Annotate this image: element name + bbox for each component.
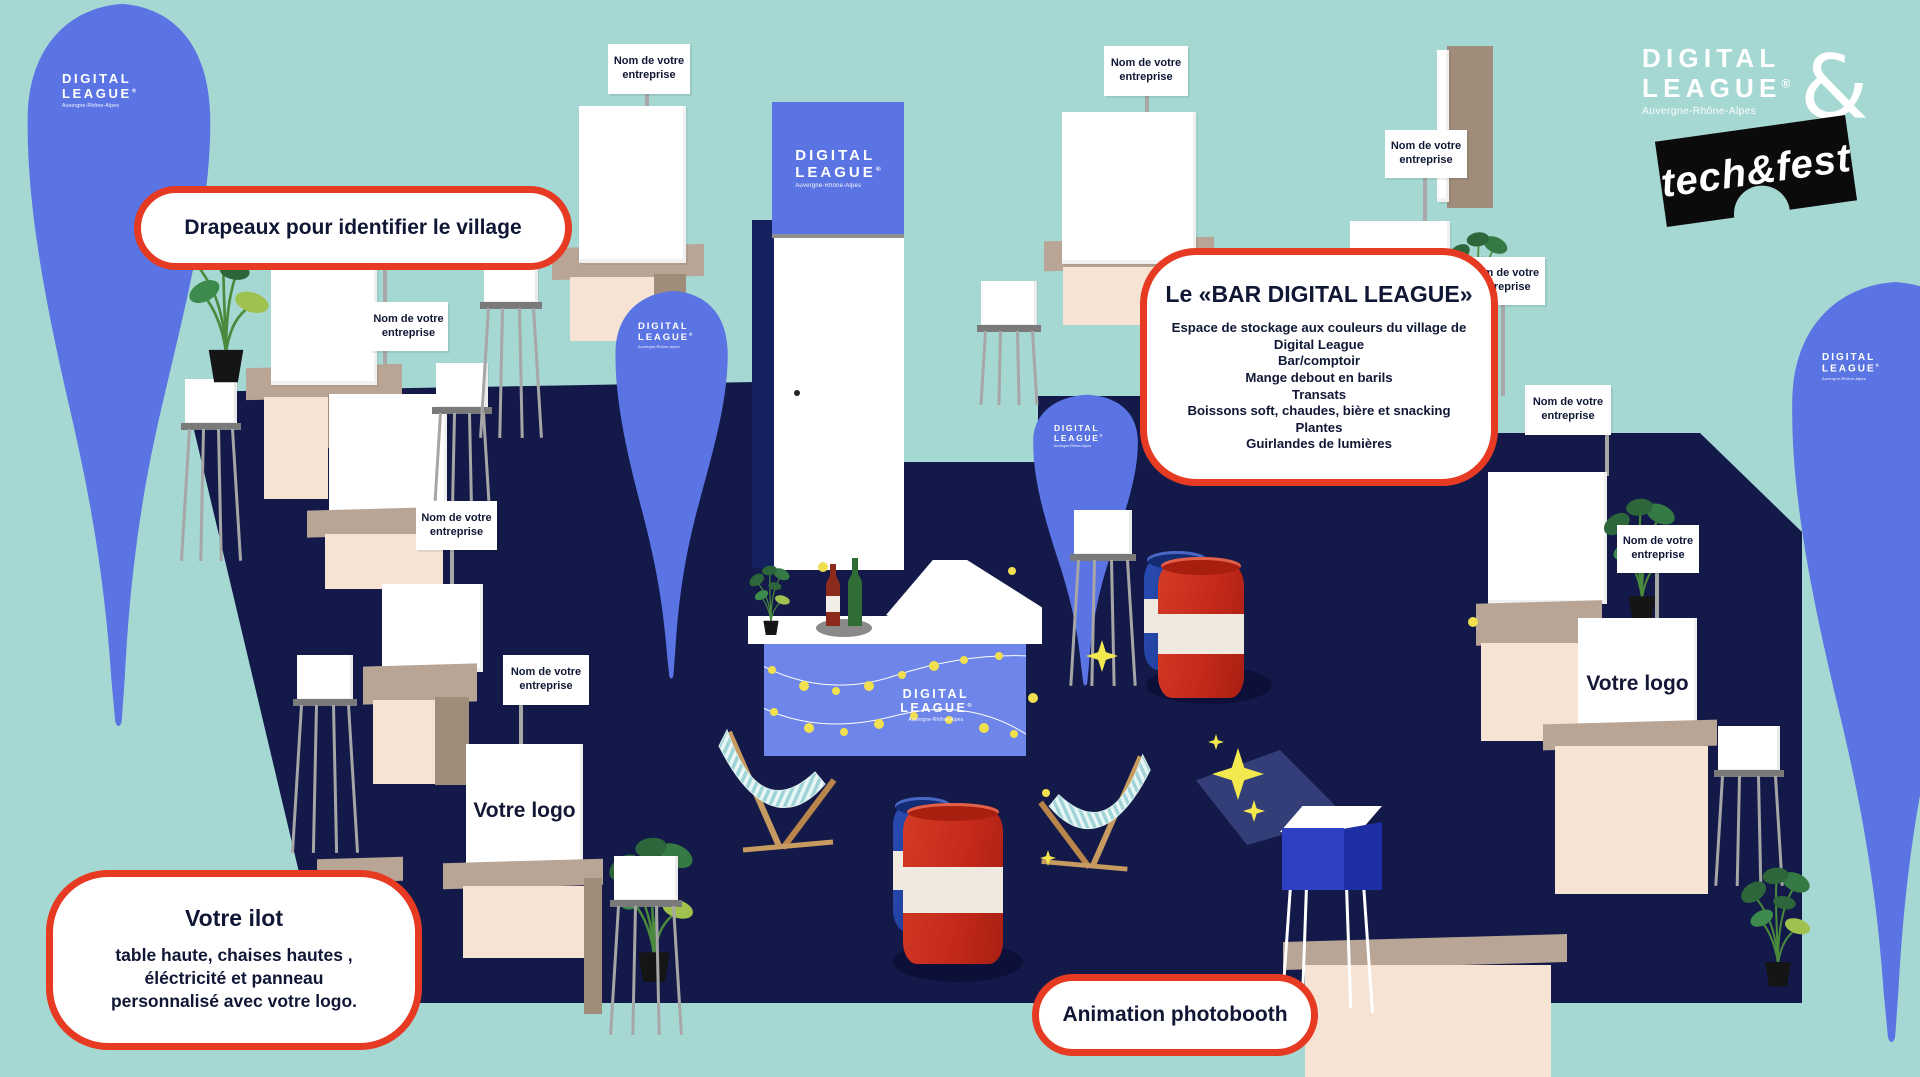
callout-flags-text: Drapeaux pour identifier le village bbox=[184, 216, 521, 240]
company-name-label: Nom de votre entreprise bbox=[371, 313, 446, 341]
digital-league-logo: DIGITAL LEAGUE® Auvergne-Rhône-Alpes bbox=[1822, 352, 1879, 381]
sign-pole bbox=[1655, 572, 1659, 622]
booth-front bbox=[1555, 746, 1708, 894]
booth-side bbox=[435, 697, 469, 785]
tower-sign: DIGITAL LEAGUE® Auvergne-Rhône-Alpes bbox=[772, 102, 904, 238]
booth-side bbox=[1447, 46, 1493, 208]
sign-pole bbox=[1501, 304, 1505, 396]
company-name-sign: Nom de votre entreprise bbox=[1525, 385, 1611, 435]
booth-logo-panel bbox=[1488, 472, 1607, 604]
plant-icon bbox=[744, 560, 798, 636]
digital-league-logo: DIGITAL LEAGUE® Auvergne-Rhône-Alpes bbox=[62, 72, 136, 109]
stool bbox=[484, 258, 538, 438]
light-dot bbox=[1468, 617, 1478, 627]
door-handle bbox=[794, 390, 800, 396]
callout-ilot: Votre ilot table haute, chaises hautes ,… bbox=[46, 870, 422, 1050]
digital-league-logo: DIGITAL LEAGUE® Auvergne-Rhône-Alpes bbox=[795, 147, 881, 189]
digital-league-logo: DIGITAL LEAGUE® Auvergne-Rhône-Alpes bbox=[900, 687, 971, 723]
booth-logo-panel bbox=[382, 584, 483, 672]
callout-bar-title: Le «BAR DIGITAL LEAGUE» bbox=[1165, 281, 1473, 308]
company-name-sign: Nom de votre entreprise bbox=[416, 501, 497, 550]
callout-bar: Le «BAR DIGITAL LEAGUE» Espace de stocka… bbox=[1140, 248, 1498, 486]
digital-league-logo: DIGITAL LEAGUE® Auvergne-Rhône-Alpes bbox=[1642, 44, 1790, 117]
callout-ilot-title: Votre ilot bbox=[53, 905, 415, 932]
photobooth-cube-side bbox=[1344, 822, 1382, 890]
booth-front bbox=[373, 700, 435, 784]
booth-logo-panel bbox=[271, 255, 377, 385]
techfest-logo: tech&fest bbox=[1655, 115, 1857, 227]
light-dot bbox=[1042, 789, 1050, 797]
digital-league-logo: DIGITAL LEAGUE® Auvergne-Rhône-Alpes bbox=[1054, 424, 1102, 448]
company-name-sign: Nom de votre entreprise bbox=[369, 302, 448, 351]
photobooth-cube bbox=[1282, 828, 1344, 890]
barrel-red bbox=[903, 810, 1003, 964]
sign-pole bbox=[1423, 176, 1427, 226]
feather-flag bbox=[22, 2, 214, 762]
stool bbox=[297, 655, 353, 853]
callout-photobooth-text: Animation photobooth bbox=[1062, 1003, 1287, 1027]
your-logo-panel: Votre logo bbox=[466, 744, 583, 878]
storage-tower-door bbox=[774, 220, 904, 570]
booth-front bbox=[463, 886, 584, 958]
stool-with-panel bbox=[614, 856, 678, 1035]
stool bbox=[981, 281, 1037, 405]
booth-front bbox=[264, 397, 328, 499]
company-name-sign: Nom de votre entreprise bbox=[503, 655, 589, 705]
feather-flag bbox=[612, 290, 730, 698]
booth-top bbox=[443, 859, 603, 889]
booth-logo-panel bbox=[1437, 50, 1449, 202]
light-dot bbox=[1028, 693, 1038, 703]
booth-logo-panel bbox=[579, 106, 686, 263]
barrel-red bbox=[1158, 564, 1244, 698]
company-name-sign: Nom de votre entreprise bbox=[608, 44, 690, 94]
digital-league-logo: DIGITAL LEAGUE® Auvergne-Rhône-Alpes bbox=[638, 322, 692, 349]
storage-tower-side bbox=[752, 220, 774, 568]
light-dot bbox=[1008, 567, 1016, 575]
plant-icon bbox=[1726, 858, 1830, 988]
deck-chair-icon bbox=[712, 722, 844, 854]
booth-logo-panel bbox=[1062, 112, 1196, 264]
company-name-sign: Nom de votre entreprise bbox=[1385, 130, 1467, 178]
light-dot bbox=[818, 562, 828, 572]
company-name-sign: Nom de votre entreprise bbox=[1104, 46, 1188, 96]
callout-flags: Drapeaux pour identifier le village bbox=[134, 186, 572, 270]
village-illustration: Nom de votre entreprise Nom de votre ent… bbox=[0, 0, 1920, 1077]
booth-front bbox=[1305, 965, 1551, 1077]
callout-photobooth: Animation photobooth bbox=[1032, 974, 1318, 1056]
company-name-sign: Nom de votre entreprise bbox=[1617, 525, 1699, 573]
